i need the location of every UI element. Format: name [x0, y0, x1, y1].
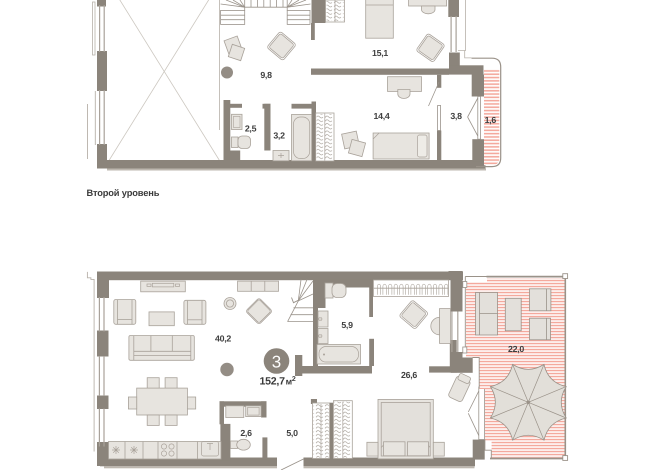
svg-text:3: 3 — [272, 352, 281, 371]
svg-text:14,4: 14,4 — [374, 111, 390, 121]
svg-text:3,8: 3,8 — [450, 111, 462, 121]
svg-text:26,6: 26,6 — [401, 370, 417, 380]
svg-text:40,2: 40,2 — [215, 334, 231, 344]
svg-text:5,0: 5,0 — [286, 428, 298, 438]
svg-text:9,8: 9,8 — [260, 70, 272, 80]
svg-text:15,1: 15,1 — [372, 48, 388, 58]
svg-text:2,5: 2,5 — [245, 124, 257, 134]
svg-text:5,9: 5,9 — [341, 320, 353, 330]
svg-text:Второй уровень: Второй уровень — [87, 188, 160, 198]
svg-text:2,6: 2,6 — [240, 428, 252, 438]
svg-text:1,6: 1,6 — [485, 115, 497, 125]
svg-text:3,2: 3,2 — [273, 131, 285, 141]
svg-text:152,7м2: 152,7м2 — [260, 376, 296, 388]
svg-text:22,0: 22,0 — [508, 344, 524, 354]
